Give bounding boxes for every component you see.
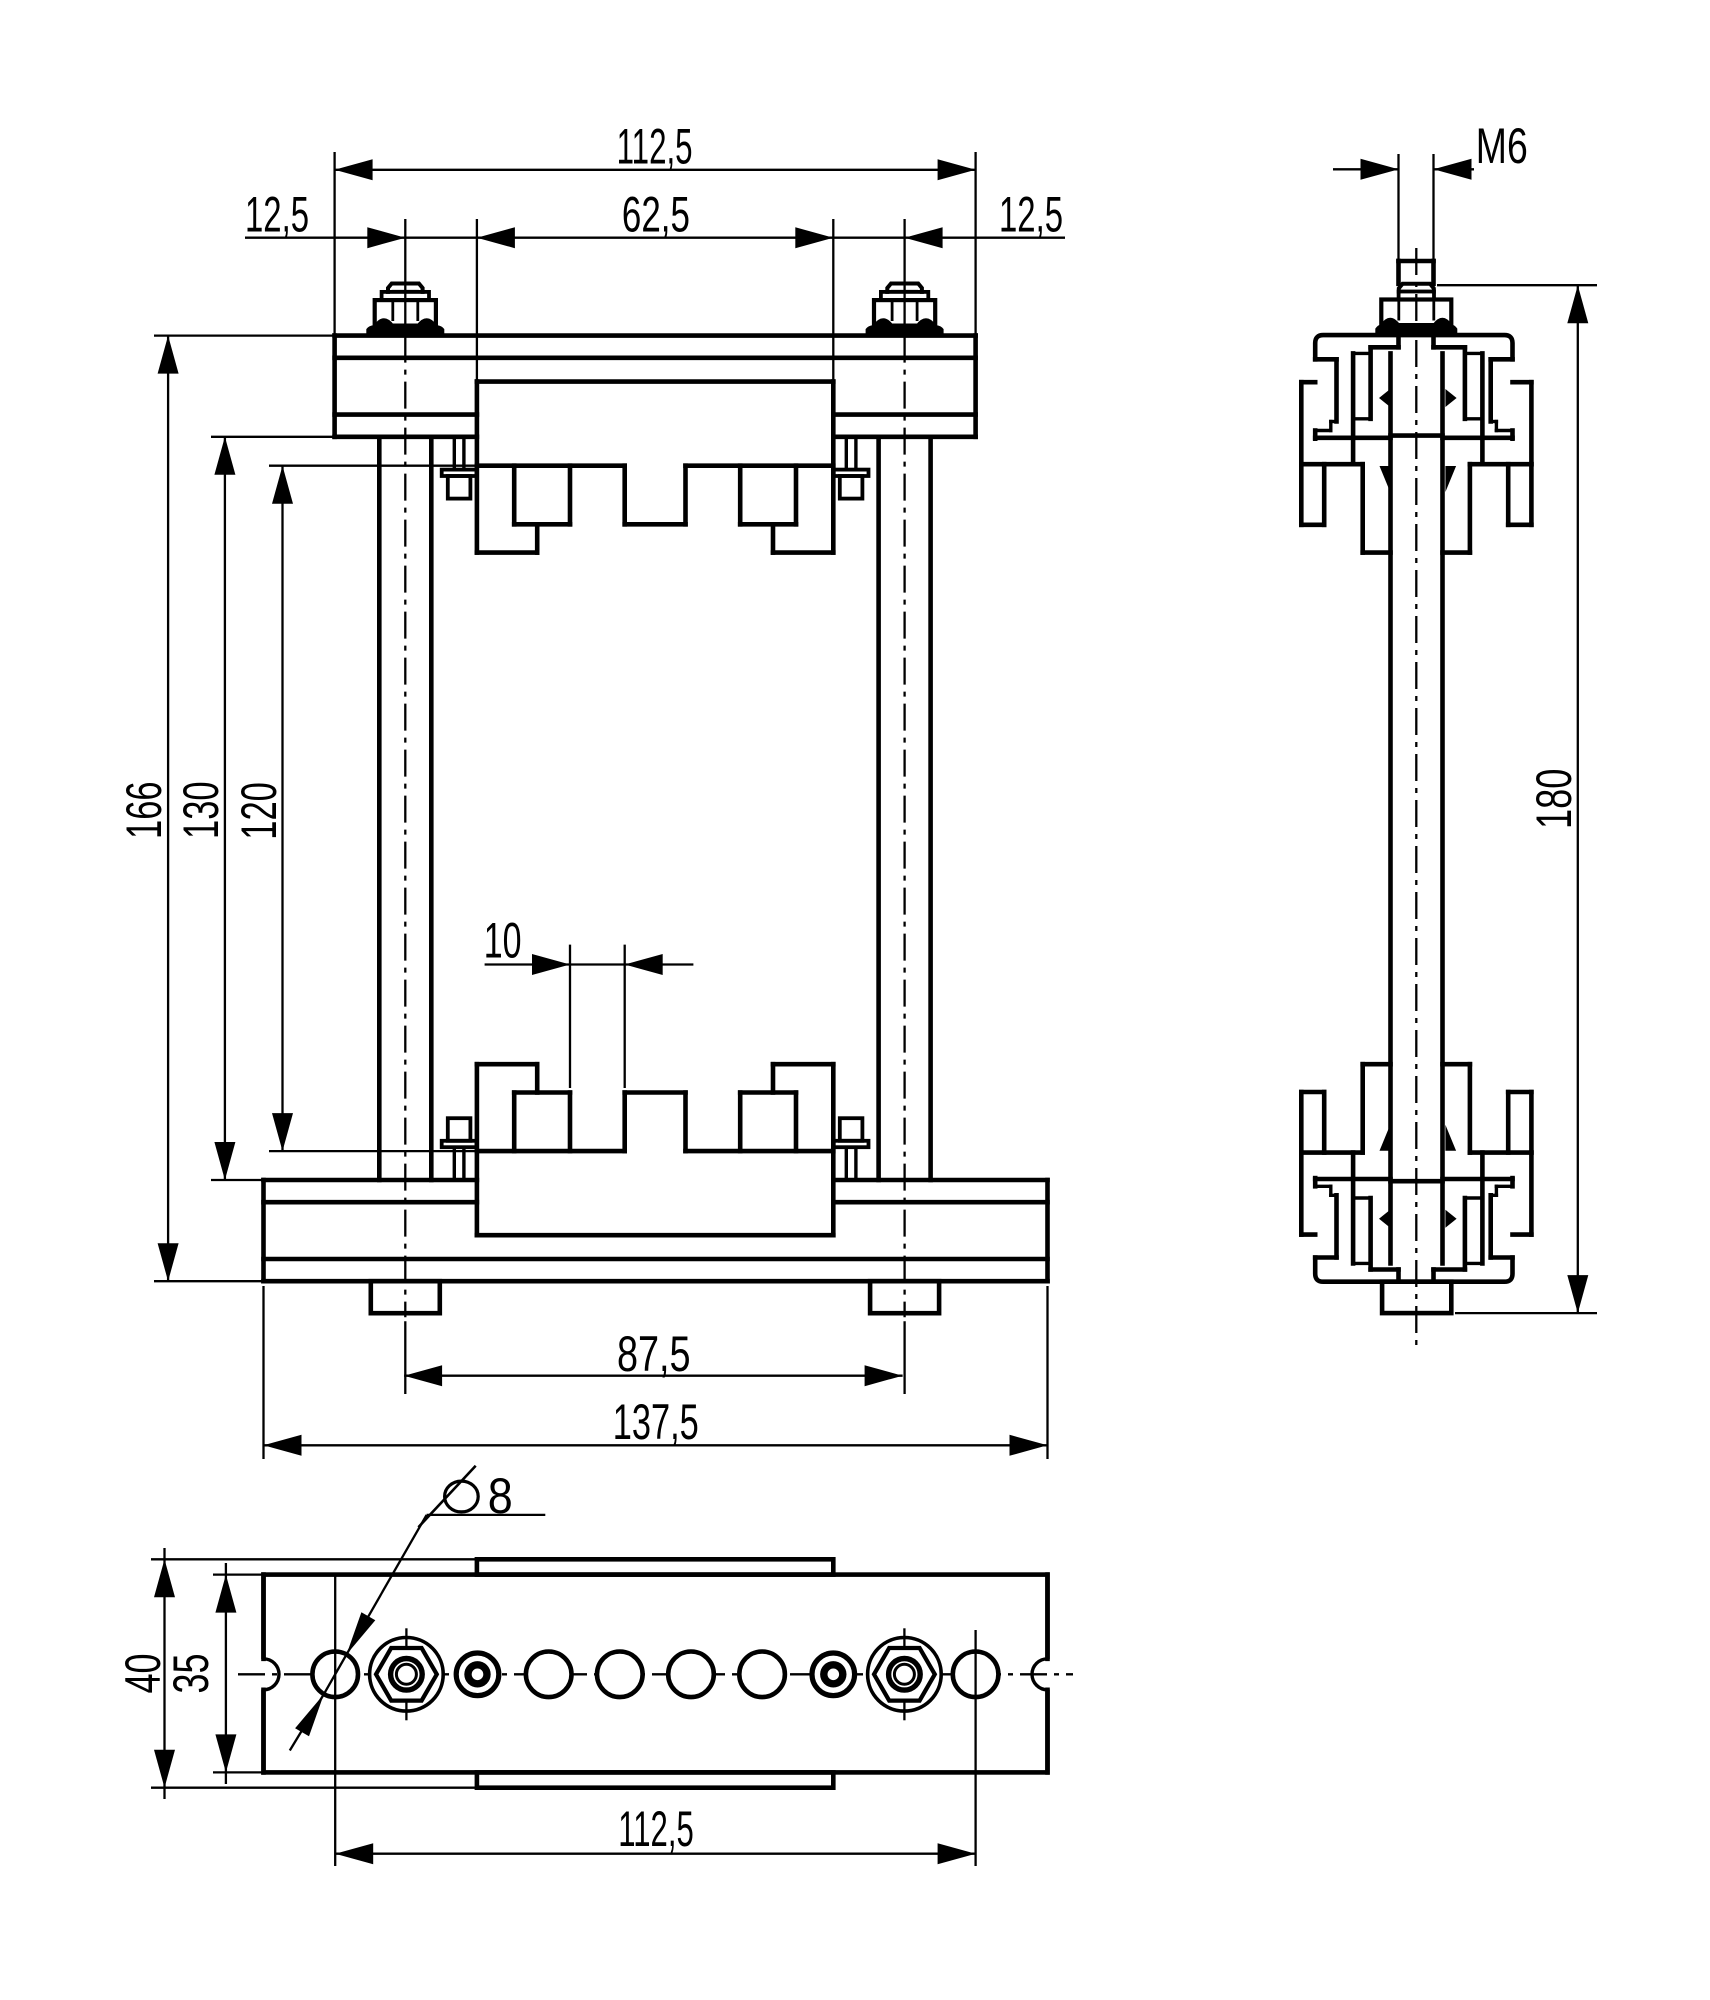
svg-text:12,5: 12,5 bbox=[999, 187, 1063, 243]
svg-text:112,5: 112,5 bbox=[618, 1801, 694, 1857]
svg-text:62,5: 62,5 bbox=[622, 187, 690, 243]
svg-text:112,5: 112,5 bbox=[617, 119, 693, 175]
svg-text:87,5: 87,5 bbox=[617, 1326, 691, 1382]
svg-text:M6: M6 bbox=[1476, 118, 1528, 174]
svg-text:35: 35 bbox=[163, 1654, 219, 1694]
svg-text:8: 8 bbox=[488, 1468, 513, 1524]
svg-text:180: 180 bbox=[1526, 769, 1582, 829]
svg-text:12,5: 12,5 bbox=[245, 187, 309, 243]
svg-text:120: 120 bbox=[231, 782, 287, 840]
svg-text:137,5: 137,5 bbox=[613, 1394, 699, 1450]
svg-text:130: 130 bbox=[173, 781, 229, 839]
svg-text:10: 10 bbox=[484, 913, 522, 969]
svg-text:166: 166 bbox=[116, 781, 172, 839]
